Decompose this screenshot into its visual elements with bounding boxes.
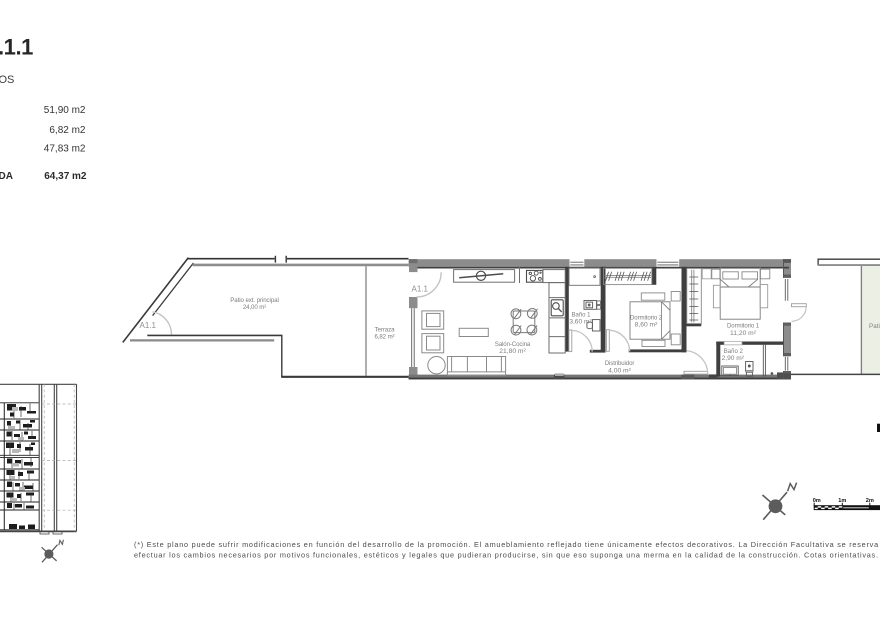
svg-text:6,82 m²: 6,82 m²: [375, 334, 395, 341]
svg-text:.1.1: .1.1: [0, 35, 33, 60]
svg-text:4,00 m²: 4,00 m²: [608, 367, 631, 374]
svg-text:OS: OS: [0, 74, 14, 86]
svg-text:(*) Este plano puede sufrir mo: (*) Este plano puede sufrir modificacion…: [134, 540, 879, 549]
svg-text:2,90 m²: 2,90 m²: [722, 355, 745, 362]
svg-text:8,60 m²: 8,60 m²: [635, 322, 658, 329]
svg-text:Terraza: Terraza: [375, 326, 396, 333]
svg-text:21,80 m²: 21,80 m²: [499, 348, 526, 355]
svg-text:47,83 m2: 47,83 m2: [44, 144, 86, 155]
svg-text:Baño 1: Baño 1: [571, 312, 591, 318]
svg-text:A1.1: A1.1: [140, 321, 157, 330]
svg-text:efectuar los cambios necesario: efectuar los cambios necesarios por moti…: [134, 550, 879, 559]
svg-text:Salón-Cocina: Salón-Cocina: [495, 341, 531, 348]
svg-text:Baño 2: Baño 2: [724, 349, 744, 355]
svg-text:6,82 m2: 6,82 m2: [49, 125, 86, 136]
svg-text:Dormitorio 2: Dormitorio 2: [630, 314, 663, 321]
svg-text:24,00 m²: 24,00 m²: [243, 304, 266, 311]
svg-text:51,90 m2: 51,90 m2: [44, 105, 86, 116]
svg-text:Patio ext. principal: Patio ext. principal: [230, 297, 279, 304]
svg-text:11,20 m²: 11,20 m²: [730, 330, 757, 337]
svg-text:Patio: Patio: [869, 323, 880, 330]
svg-text:64,37 m2: 64,37 m2: [44, 171, 87, 182]
svg-text:A1.1: A1.1: [412, 284, 429, 293]
svg-text:DA: DA: [0, 171, 13, 182]
svg-text:Dormitorio 1: Dormitorio 1: [727, 323, 760, 330]
svg-text:Distribuidor: Distribuidor: [605, 360, 635, 367]
